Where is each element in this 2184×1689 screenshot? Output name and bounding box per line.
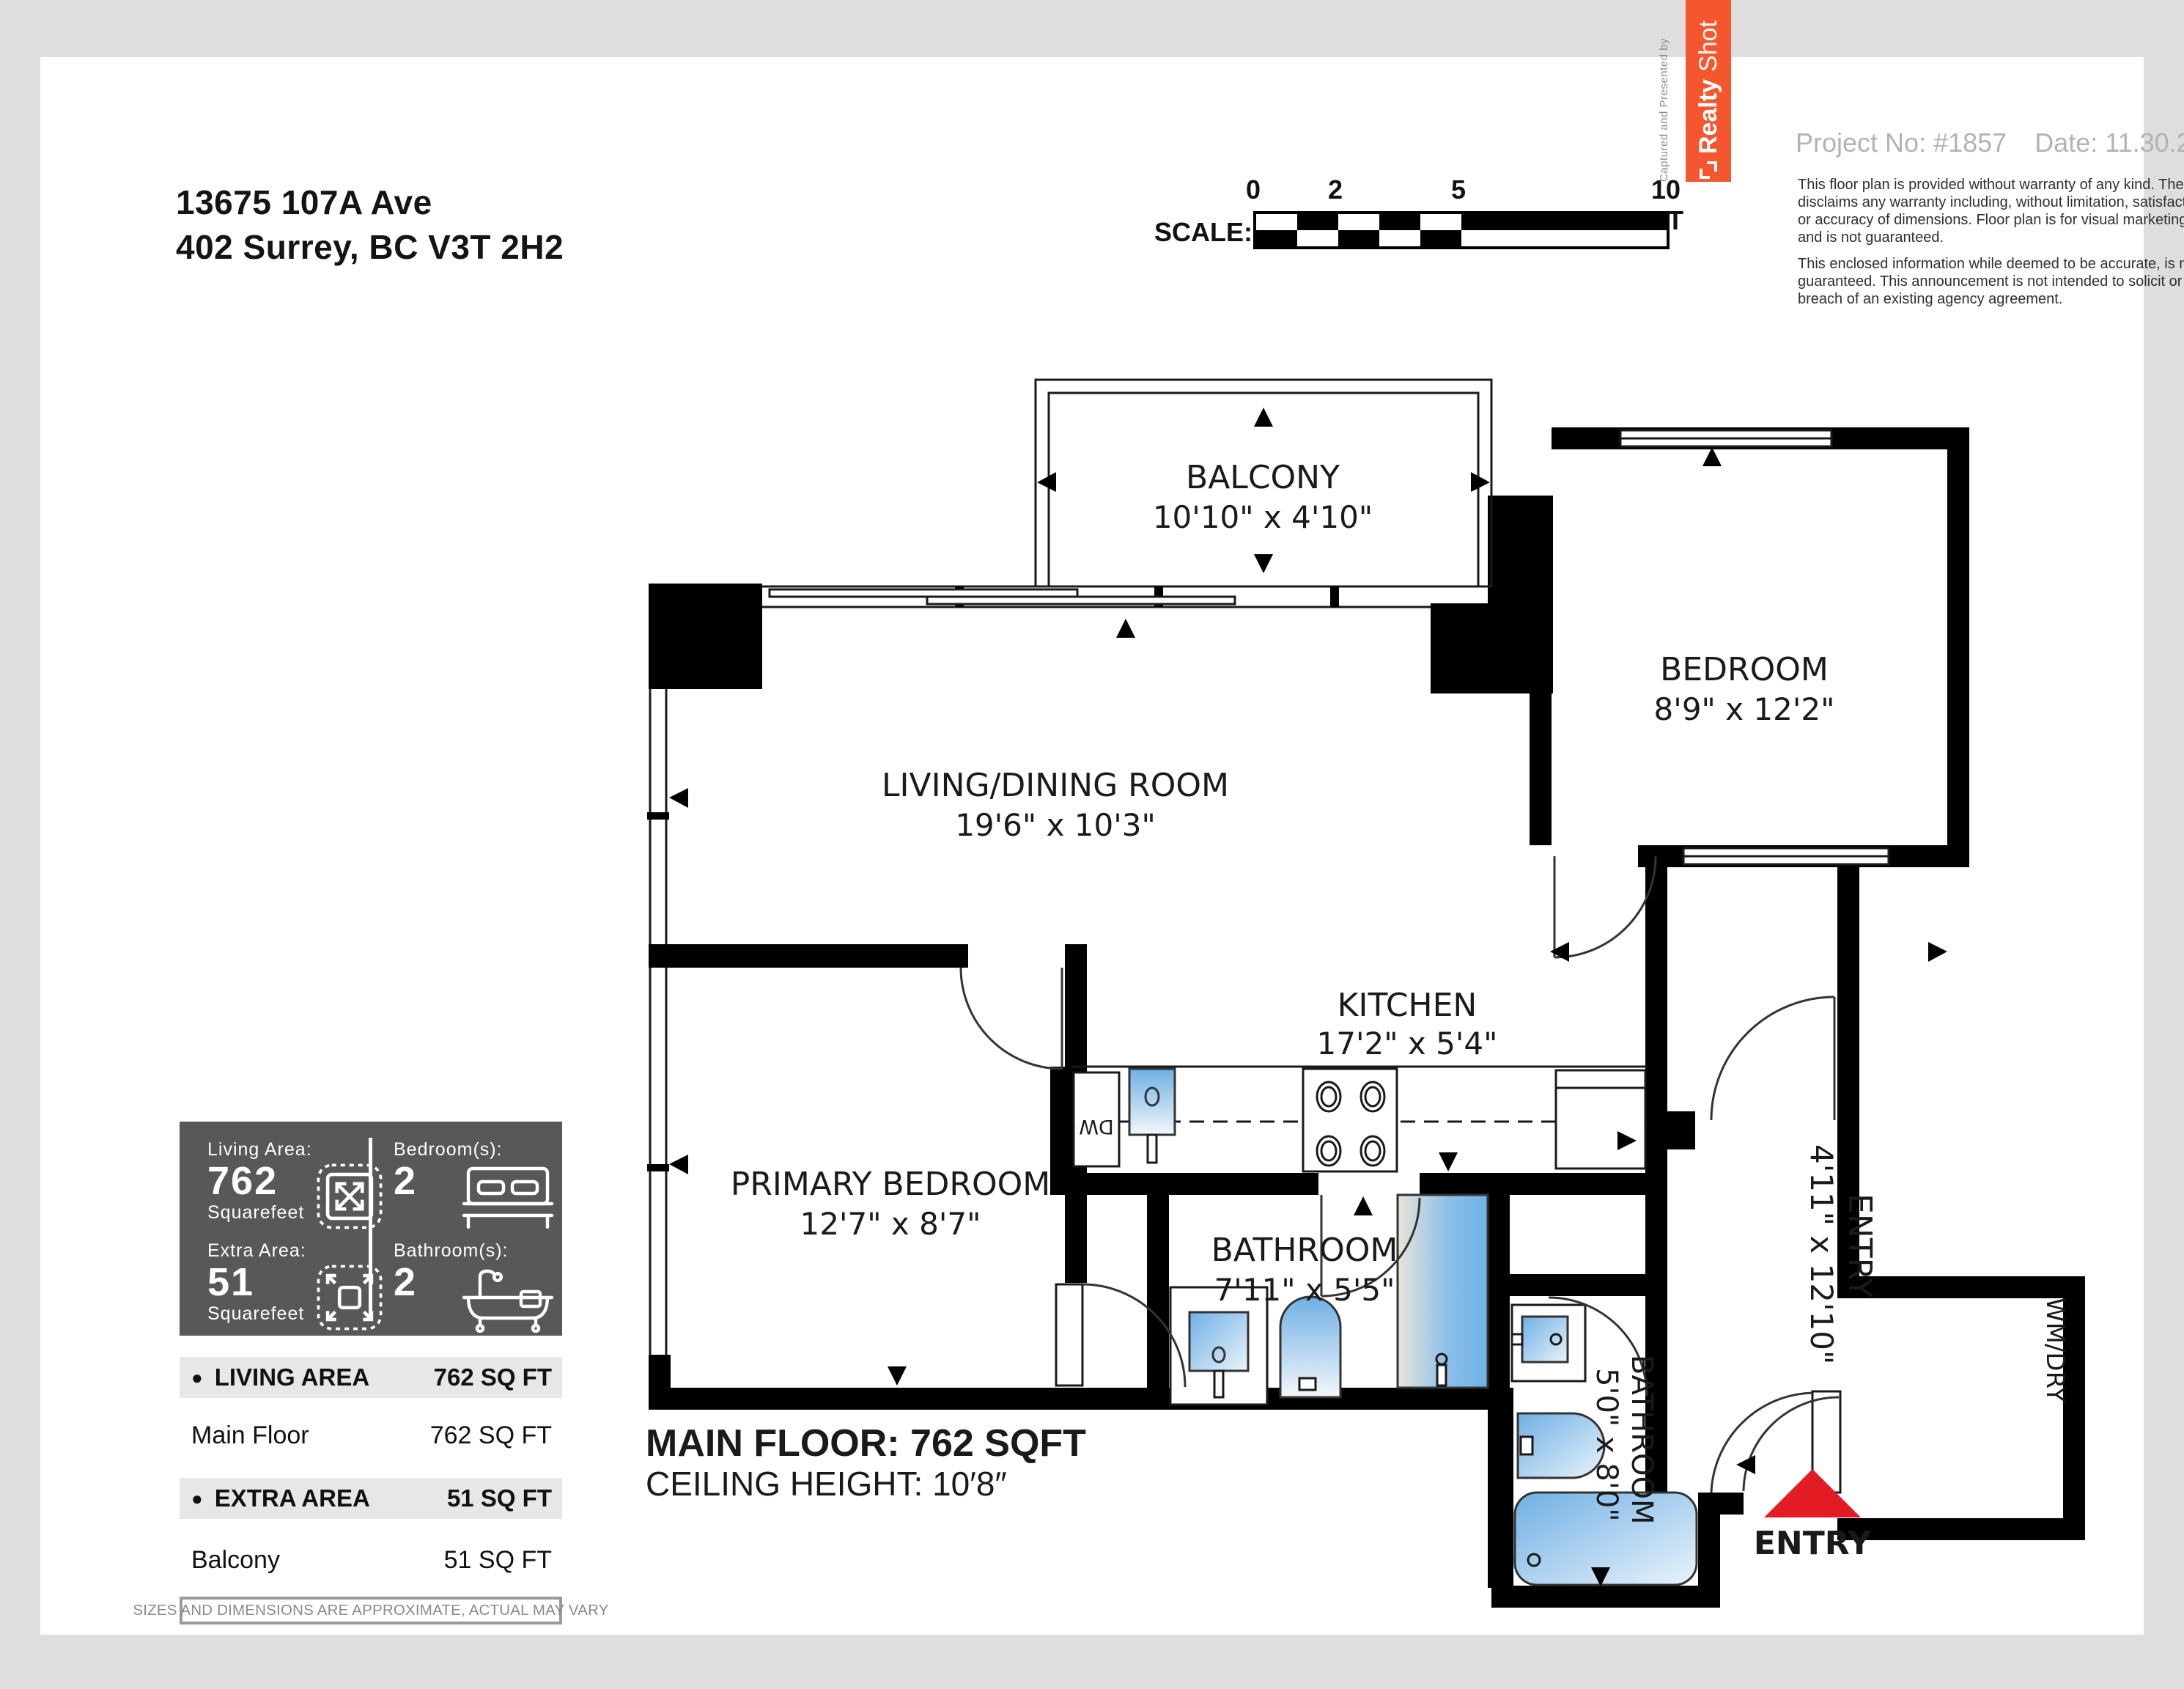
living-header-total: 762 SQ FT: [434, 1364, 552, 1391]
property-address: 13675 107A Ave 402 Surrey, BC V3T 2H2: [176, 180, 564, 269]
bathroom1-name: BATHROOM: [1211, 1232, 1398, 1269]
primary-bedroom-name: PRIMARY BEDROOM: [731, 1166, 1050, 1203]
entry-name: ENTRY: [1841, 1193, 1878, 1298]
bathroom2-name: BATHROOM: [1625, 1355, 1659, 1524]
wm-dry-label: WM/DRY: [2040, 1298, 2070, 1402]
kitchen-dims: 17'2" x 5'4": [1317, 1026, 1498, 1061]
dishwasher-label: DW: [1079, 1115, 1114, 1138]
ceiling-height: CEILING HEIGHT: 10′8″: [646, 1465, 1007, 1503]
bedroom-door: [1554, 856, 1656, 957]
living-area-header-row: ● LIVING AREA 762 SQ FT: [180, 1357, 562, 1398]
bathrooms-label: Bathroom(s):: [394, 1240, 577, 1262]
scale-tick-0: 0: [1246, 174, 1261, 205]
entry-dims: 4'11" x 12'10": [1804, 1144, 1840, 1364]
stat-extra-area: Extra Area: 51 Squarefeet: [207, 1240, 391, 1336]
kitchen-sink: [1129, 1069, 1175, 1135]
balcony-row: Balcony 51 SQ FT: [180, 1539, 562, 1581]
scale-row-bottom: [1256, 230, 1667, 246]
scale-row-top: [1256, 214, 1667, 230]
scale-bar-graphic: [1253, 211, 1670, 249]
scale-bar: SCALE: 0 2 5 10 FT: [1154, 174, 1697, 255]
bathroom1-shower: [1398, 1195, 1488, 1388]
stat-living-area: Living Area: 762 Squarefeet: [207, 1139, 391, 1234]
balcony-name: BALCONY: [1186, 459, 1340, 496]
living-dining-name: LIVING/DINING ROOM: [882, 767, 1229, 804]
entry-marker: ENTRY: [1754, 1469, 1872, 1562]
disclaimer-agency: This enclosed information while deemed t…: [1798, 255, 2184, 308]
balcony-value: 51 SQ FT: [444, 1546, 552, 1575]
balcony-label: Balcony: [191, 1546, 280, 1575]
stat-bedrooms: Bedroom(s): 2: [394, 1139, 577, 1234]
kitchen-counter: DW: [1072, 1067, 1647, 1171]
extra-bullet-icon: ●: [191, 1489, 203, 1508]
extra-header-label: EXTRA AREA: [215, 1484, 370, 1512]
living-bullet-icon: ●: [191, 1368, 203, 1387]
extra-header-total: 51 SQ FT: [447, 1484, 552, 1512]
balcony-dims: 10'10" x 4'10": [1153, 499, 1373, 535]
entry-arrow-icon: [1764, 1469, 1861, 1517]
kitchen-name: KITCHEN: [1338, 987, 1477, 1024]
bathroom2-dims: 5'0" x 8'0": [1590, 1368, 1623, 1522]
main-floor-title: MAIN FLOOR: 762 SQFT: [646, 1422, 1086, 1465]
disclaimer-warranty: This floor plan is provided without warr…: [1798, 176, 2184, 246]
scale-tick-2: 2: [1328, 174, 1343, 205]
main-floor-value: 762 SQ FT: [430, 1421, 552, 1450]
expand-out-icon: [316, 1264, 383, 1335]
dimensions-note: SIZES AND DIMENSIONS ARE APPROXIMATE, AC…: [180, 1597, 562, 1624]
floorplan-card: 13675 107A Ave 402 Surrey, BC V3T 2H2 SC…: [40, 57, 2144, 1635]
floor-plan: DW: [641, 372, 2085, 1611]
bed-icon: [460, 1164, 556, 1235]
primary-bedroom-dims: 12'7" x 8'7": [800, 1206, 981, 1242]
page: { "header": { "address_line1": "13675 10…: [0, 0, 2184, 1689]
main-floor-label: Main Floor: [191, 1421, 309, 1450]
living-area-label: Living Area:: [207, 1139, 391, 1160]
bedrooms-label: Bedroom(s):: [394, 1139, 577, 1160]
stat-bathrooms: Bathroom(s): 2: [394, 1240, 577, 1336]
address-line1: 13675 107A Ave: [176, 180, 564, 225]
bedroom-name: BEDROOM: [1660, 651, 1829, 688]
project-date: Date: 11.30.2025: [2034, 128, 2184, 158]
fridge: [1556, 1070, 1645, 1169]
extra-area-label: Extra Area:: [207, 1240, 391, 1262]
bedroom-dims: 8'9" x 12'2": [1654, 691, 1835, 727]
bathroom1-dims: 7'11" x 5'5": [1214, 1272, 1395, 1308]
realtyshot-logo-icon: [1700, 161, 1717, 179]
primary-bedroom-door: [961, 968, 1062, 1069]
corridor-door: [1711, 997, 1834, 1120]
living-header-label: LIVING AREA: [215, 1364, 369, 1391]
scale-tick-5: 5: [1451, 174, 1466, 205]
expand-area-icon: [316, 1163, 383, 1234]
extra-area-header-row: ● EXTRA AREA 51 SQ FT: [180, 1478, 562, 1519]
stats-panel: Living Area: 762 Squarefeet Bedroom(s): …: [180, 1122, 562, 1336]
project-number: Project No: #1857: [1796, 128, 2007, 158]
brand-ribbon: RealtyShot: [1686, 0, 1731, 182]
address-line2: 402 Surrey, BC V3T 2H2: [176, 225, 564, 270]
brand-logo: RealtyShot: [1686, 3, 1731, 179]
living-dining-dims: 19'6" x 10'3": [955, 807, 1156, 843]
brand-shot: Shot: [1694, 21, 1723, 72]
project-info: Project No: #1857 Date: 11.30.2025: [1796, 128, 2184, 158]
scale-ticks: 0 2 5 10 FT: [1154, 174, 1697, 204]
scale-label: SCALE:: [1154, 217, 1253, 248]
main-floor-row: Main Floor 762 SQ FT: [180, 1415, 562, 1456]
bathtub-icon: [460, 1265, 556, 1336]
entry-marker-label: ENTRY: [1754, 1525, 1872, 1562]
captured-by-label: Captured and Presented by: [1658, 43, 1672, 182]
brand-realty: Realty: [1694, 79, 1723, 154]
